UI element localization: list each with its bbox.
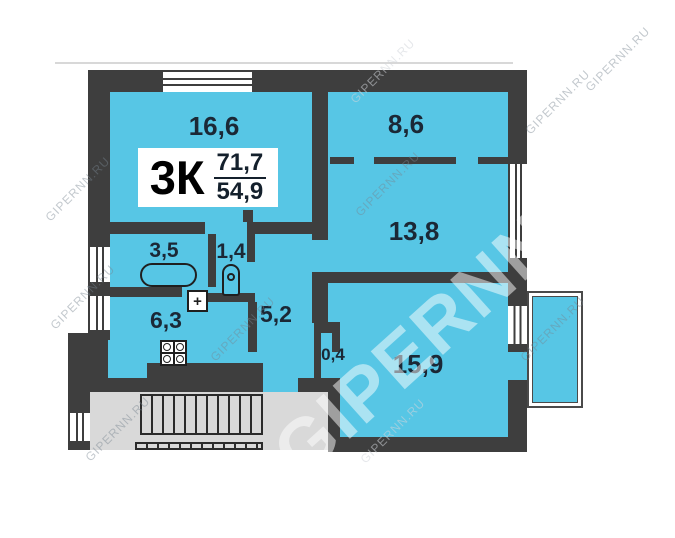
stairs-icon bbox=[140, 394, 263, 435]
partition-dash-2 bbox=[374, 157, 456, 164]
floor-plan-canvas: + 3К 71,7 54,9 16,6 8,6 13,8 3,5 1,4 5,2… bbox=[0, 0, 675, 538]
area-fraction: 71,7 54,9 bbox=[214, 150, 267, 205]
balcony-door-opening bbox=[508, 352, 527, 380]
window-room138 bbox=[510, 164, 527, 258]
info-box: 3К 71,7 54,9 bbox=[138, 148, 278, 207]
top-divider-line bbox=[55, 62, 513, 64]
stove-icon bbox=[160, 340, 187, 366]
window-top bbox=[163, 72, 252, 92]
watermark: GIPERNN.RU bbox=[583, 24, 653, 94]
door-opening-room138 bbox=[312, 240, 328, 272]
wall-livingroom-bottom-left bbox=[108, 222, 205, 234]
window-stairwell bbox=[70, 413, 90, 441]
room-area-label-hallway: 5,2 bbox=[246, 299, 306, 329]
room-area-label-toilet: 1,4 bbox=[201, 238, 261, 266]
window-kitchen bbox=[90, 296, 110, 330]
stove-burner-cell bbox=[175, 342, 186, 352]
balcony-floor bbox=[532, 296, 578, 403]
wall-room159-bottom bbox=[328, 437, 527, 452]
room-area-label-bathroom: 3,5 bbox=[134, 237, 194, 265]
partition-dash-3 bbox=[478, 157, 508, 164]
room-area-label-kitchen: 6,3 bbox=[136, 305, 196, 335]
balcony bbox=[527, 291, 583, 408]
living-area-value: 54,9 bbox=[217, 179, 264, 205]
partition-dash-1 bbox=[330, 157, 354, 164]
watermark: GIPERNN.RU bbox=[523, 67, 593, 137]
wall-livingroom-bottom-right bbox=[248, 222, 328, 234]
room-area-label-bottom-right: 15,9 bbox=[378, 348, 458, 380]
stove-burner-cell bbox=[162, 354, 173, 364]
total-area-value: 71,7 bbox=[214, 150, 267, 179]
wall-central-upper bbox=[312, 92, 328, 240]
stairs-icon-lower bbox=[135, 442, 263, 450]
room-area-label-top-right: 8,6 bbox=[366, 108, 446, 140]
bathtub-icon bbox=[140, 263, 197, 287]
room-area-label-living: 16,6 bbox=[174, 110, 254, 142]
stove-burner-cell bbox=[162, 342, 173, 352]
wall-kitchen-bottom bbox=[88, 378, 147, 392]
wall-top bbox=[88, 70, 527, 92]
wall-kitchen-bottom-block bbox=[147, 363, 263, 392]
wall-closet-top bbox=[314, 322, 340, 333]
wall-right bbox=[508, 92, 527, 452]
room-area-label-closet: 0,4 bbox=[313, 345, 353, 365]
room-area-label-mid-right: 13,8 bbox=[374, 215, 454, 247]
wall-bathroom-bottom bbox=[108, 287, 182, 297]
window-room159-balcony bbox=[508, 306, 527, 344]
stove-burner-cell bbox=[175, 354, 186, 364]
toilet-icon bbox=[222, 264, 240, 296]
toilet-bowl-icon bbox=[227, 273, 235, 281]
apartment-type-label: 3К bbox=[150, 154, 205, 201]
door-jamb-livingroom bbox=[243, 210, 253, 222]
wall-divider-138-159 bbox=[312, 272, 510, 283]
window-bathroom bbox=[90, 247, 110, 282]
